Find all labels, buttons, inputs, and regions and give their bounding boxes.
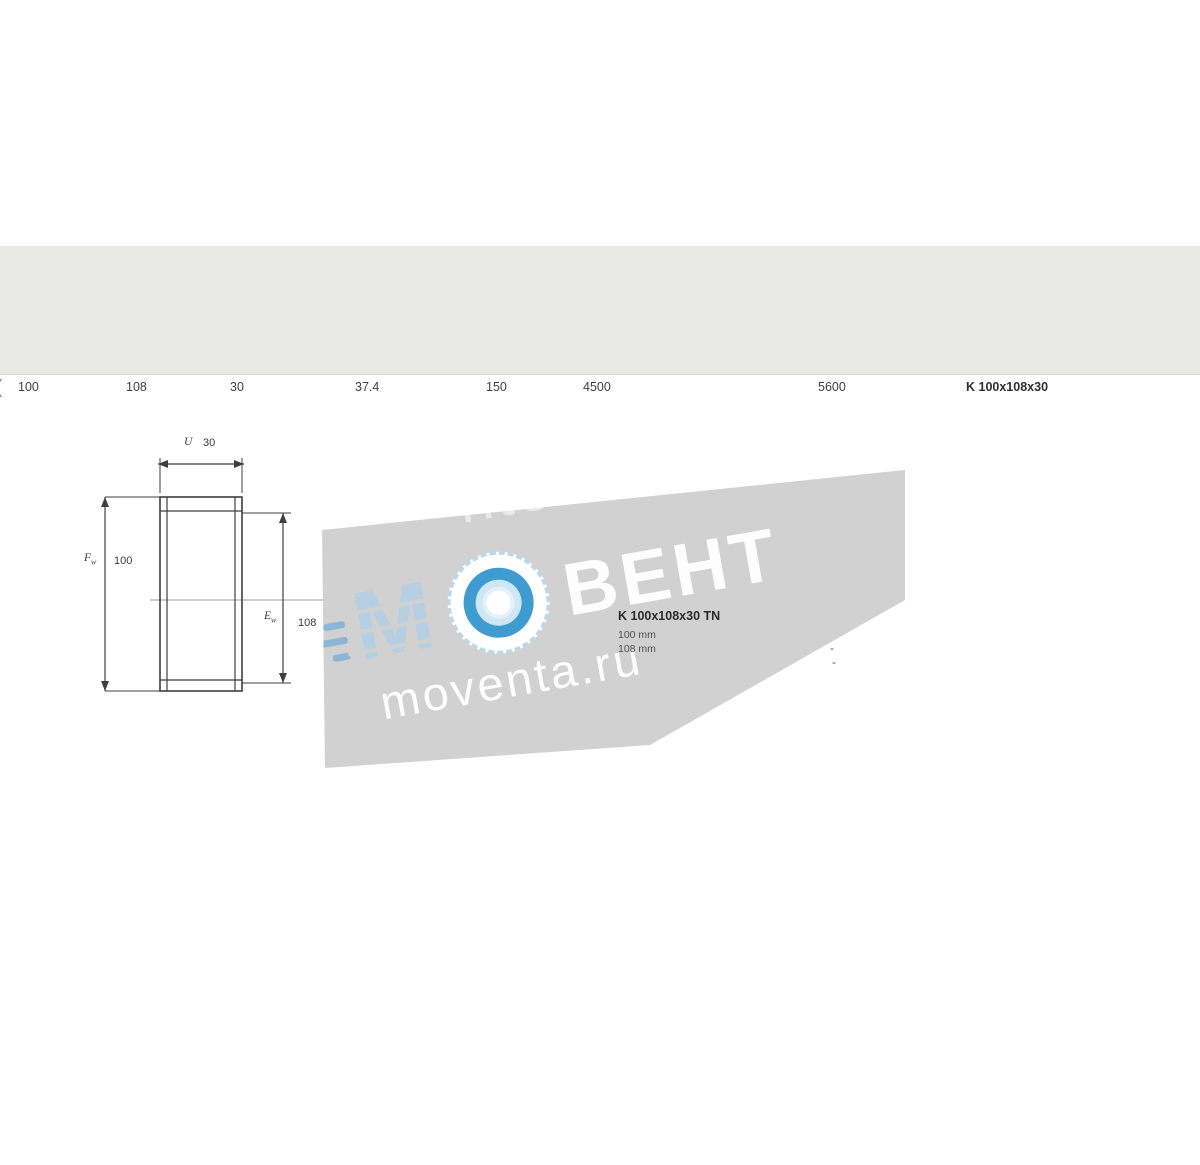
cell-c-dyn: 37.4 [355,381,379,395]
product-caption-line-1: 100 mm [618,630,656,642]
page-root: nte.ru M ВЕНТ moventa.ru Dimensions d'en… [0,0,1200,1165]
left-edge-artifact: ( [0,378,2,399]
cell-fw: 100 [18,381,39,395]
bearing-logo-icon [440,544,558,662]
dim-bore-value: 100 [114,555,132,567]
cell-c-stat: 150 [486,381,507,395]
placeholder-dash-2: - [832,656,836,669]
product-caption-line-2: 108 mm [618,644,656,656]
dim-bore-symbol: Fw [84,552,96,567]
cell-u: 30 [230,381,244,395]
watermark-url-ghost: nte.ru [452,437,638,538]
dim-width-symbol: U [184,436,192,449]
motion-line-icon [323,621,346,632]
table-header-band [0,246,1200,375]
designation-link[interactable]: K 100x108x30 [966,381,1048,395]
product-caption-title: K 100x108x30 TN [618,610,720,624]
watermark-logo-m: M [346,572,440,671]
dim-width-value: 30 [203,437,215,449]
bearing-drawing [58,418,348,718]
placeholder-dash-1: - [830,642,834,655]
cell-v-ref: 4500 [583,381,611,395]
cell-ew: 108 [126,381,147,395]
dim-outer-value: 108 [298,617,316,629]
dim-outer-symbol: Ew [264,610,276,625]
cell-v-lim: 5600 [818,381,846,395]
